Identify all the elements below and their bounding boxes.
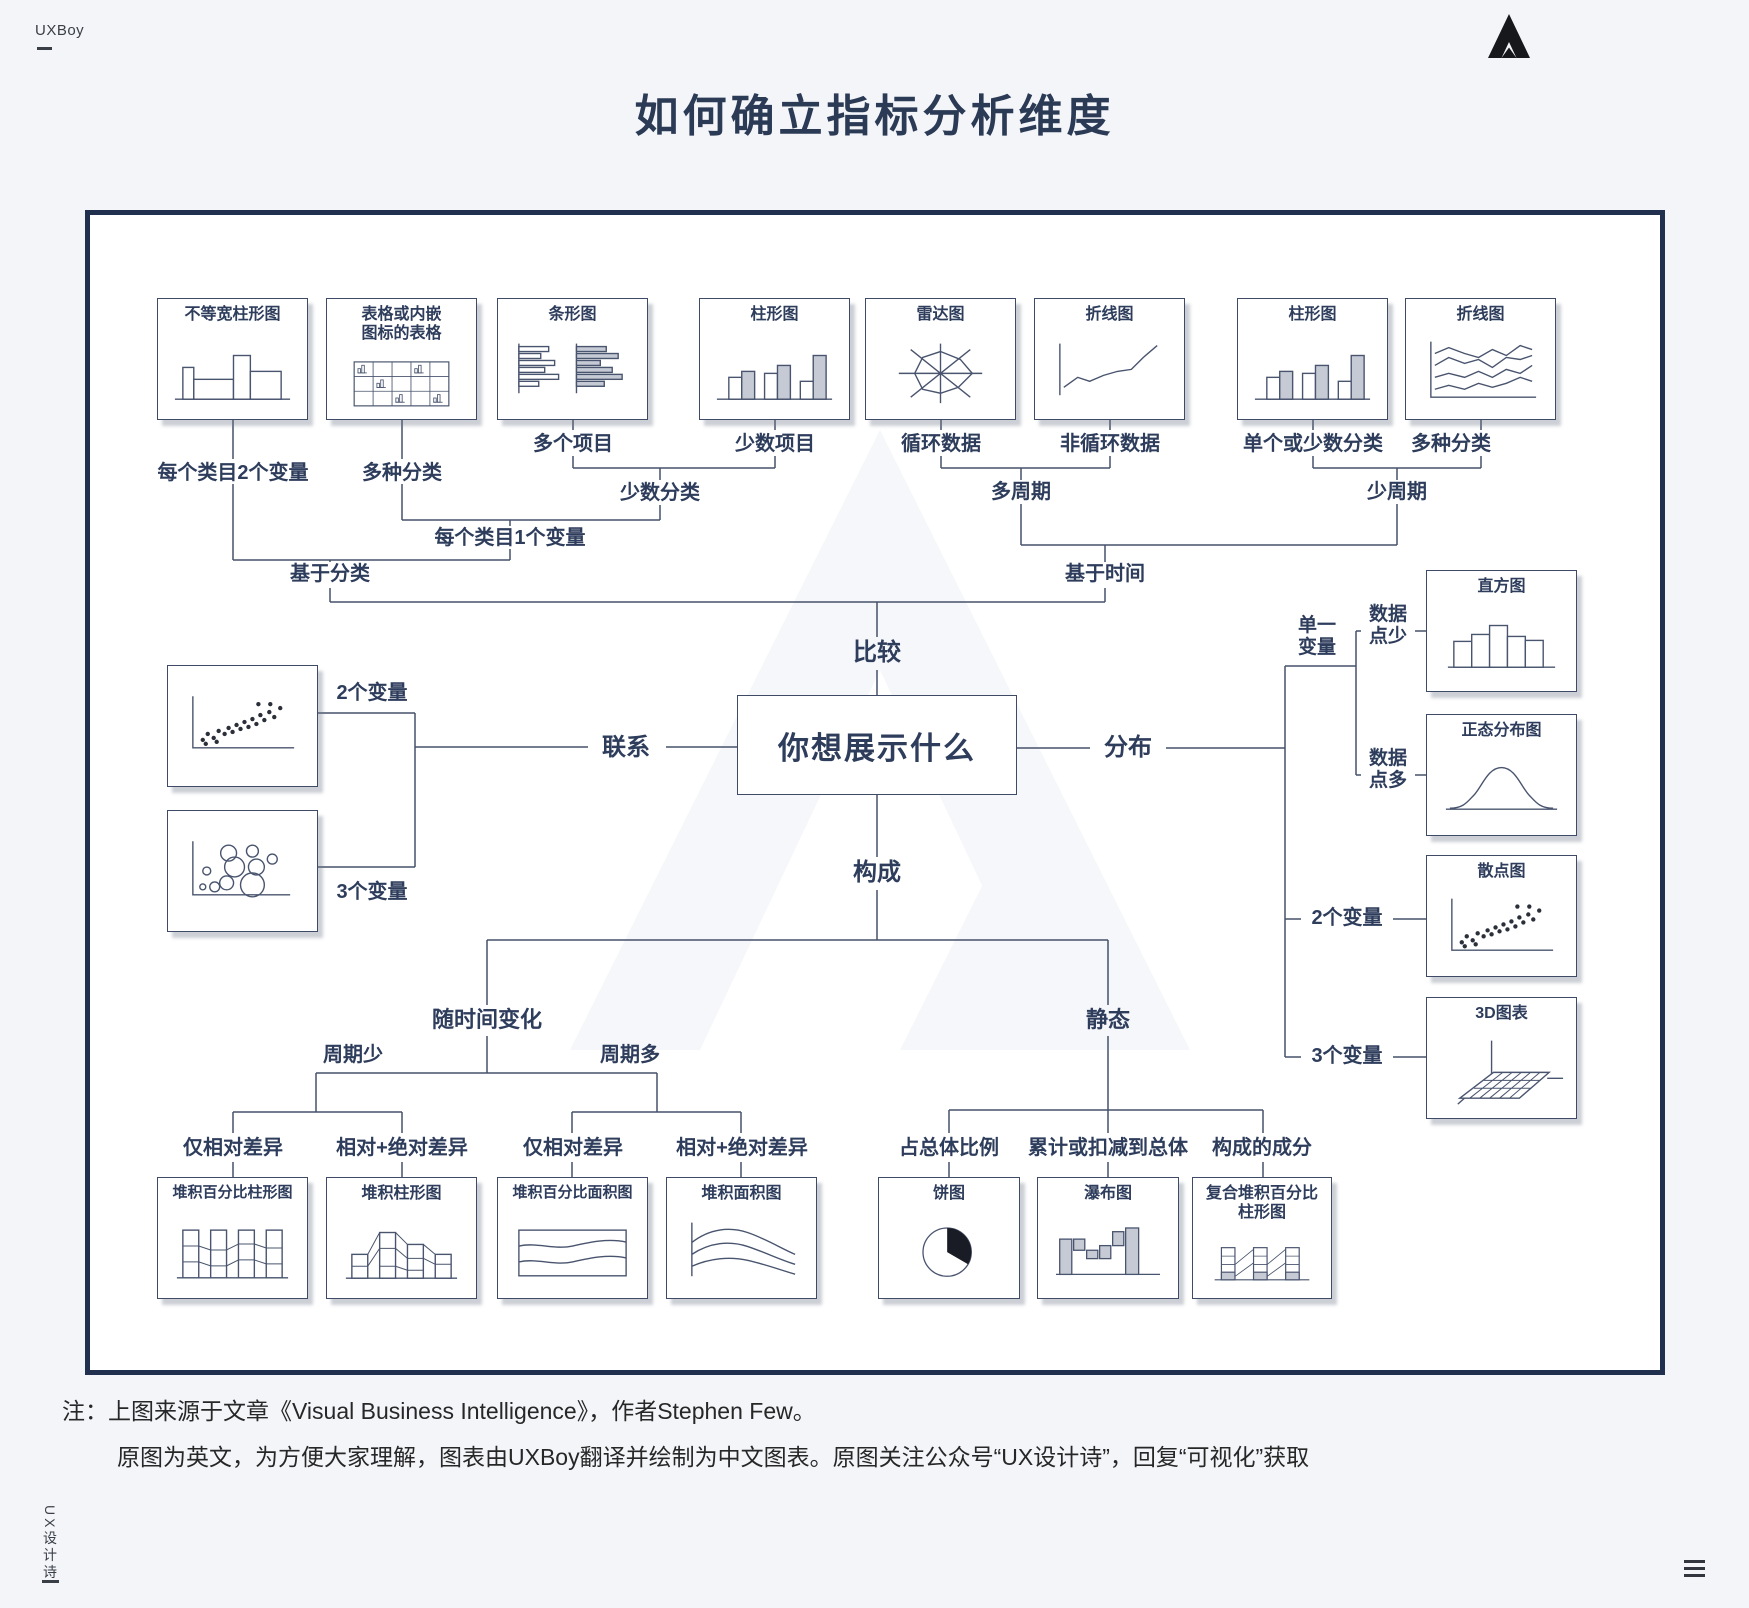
chart-card-title: 堆积百分比面积图 — [498, 1178, 647, 1202]
chart-card-title: 散点图 — [1427, 856, 1576, 881]
flow-label-m3: 少周期 — [1352, 481, 1442, 504]
chart-card-surface-3d: 3D图表 — [1426, 997, 1577, 1119]
scatter-thumbnail-icon — [1427, 881, 1576, 976]
scatter-thumbnail-icon — [168, 666, 317, 786]
chart-card-column-pair: 柱形图 — [699, 298, 850, 420]
flow-label-m6: 基于时间 — [1050, 563, 1160, 586]
flow-label-a7: 单个或少数分类 — [1223, 433, 1403, 456]
chart-card-compound-stacked: 复合堆积百分比 柱形图 — [1192, 1177, 1332, 1299]
flow-label-m4: 每个类目1个变量 — [415, 527, 605, 550]
menu-icon[interactable] — [1684, 1560, 1705, 1581]
chart-card-scatter: 散点图 — [1426, 855, 1577, 977]
chart-card-title: 饼图 — [879, 1178, 1019, 1203]
chart-card-stacked-area: 堆积面积图 — [666, 1177, 817, 1299]
chart-card-title: 正态分布图 — [1427, 715, 1576, 740]
page-title: 如何确立指标分析维度 — [0, 80, 1749, 144]
flow-label-a2: 多种分类 — [342, 462, 462, 485]
chart-card-waterfall: 瀑布图 — [1037, 1177, 1179, 1299]
chart-card-line-single: 折线图 — [1034, 298, 1185, 420]
chart-card-stacked100-column: 堆积百分比柱形图 — [157, 1177, 308, 1299]
flow-label-a4: 少数项目 — [715, 433, 835, 456]
flow-label-m5: 基于分类 — [275, 563, 385, 586]
chart-card-histogram: 直方图 — [1426, 570, 1577, 692]
stacked100-column-thumbnail-icon — [158, 1202, 307, 1298]
chart-card-title: 表格或内嵌 图标的表格 — [327, 299, 476, 343]
pie-thumbnail-icon — [879, 1203, 1019, 1298]
column-pair-thumbnail-icon — [1238, 324, 1387, 419]
flow-label-rv3: 3个变量 — [1301, 1045, 1393, 1068]
flow-label-q6: 累计或扣减到总体 — [1018, 1137, 1198, 1160]
triangle-logo-icon — [1487, 13, 1531, 60]
chart-card-pie: 饼图 — [878, 1177, 1020, 1299]
line-single-thumbnail-icon — [1035, 324, 1184, 419]
flow-label-d2: 联系 — [590, 734, 662, 762]
chart-card-title: 堆积面积图 — [667, 1178, 816, 1203]
flow-label-q3: 仅相对差异 — [509, 1137, 637, 1160]
column-pair-thumbnail-icon — [700, 324, 849, 419]
stacked100-area-thumbnail-icon — [498, 1202, 647, 1298]
vertical-brand-text: UX设计诗 — [40, 1505, 60, 1581]
chart-card-stacked100-area: 堆积百分比面积图 — [497, 1177, 648, 1299]
chart-card-normal-curve: 正态分布图 — [1426, 714, 1577, 836]
compound-stacked-thumbnail-icon — [1193, 1222, 1331, 1298]
flow-label-q5: 占总体比例 — [884, 1137, 1014, 1160]
chart-card-radar: 雷达图 — [865, 298, 1016, 420]
flow-label-a8: 多种分类 — [1391, 433, 1511, 456]
normal-curve-thumbnail-icon — [1427, 740, 1576, 835]
diagram-frame: 你想展示什么 不等宽柱形图表格或内嵌 图标的表格条形图柱形图雷达图折线图柱形图折… — [85, 210, 1665, 1375]
line-multi-thumbnail-icon — [1406, 324, 1555, 419]
flow-label-d3: 分布 — [1092, 734, 1164, 762]
histogram-thumbnail-icon — [1427, 596, 1576, 691]
radar-thumbnail-icon — [866, 324, 1015, 419]
table-embedded-thumbnail-icon — [327, 343, 476, 419]
flow-label-lv2: 2个变量 — [322, 682, 422, 705]
brand-dash — [37, 47, 52, 50]
stacked-area-thumbnail-icon — [667, 1203, 816, 1298]
footer-note: 注：上图来源于文章《Visual Business Intelligence》，… — [62, 1388, 1309, 1480]
chart-card-bar: 条形图 — [497, 298, 648, 420]
flow-label-rv1: 单一 变量 — [1290, 615, 1344, 659]
flow-label-p2: 周期多 — [585, 1044, 675, 1067]
flow-label-b1: 随时间变化 — [417, 1007, 557, 1032]
chart-card-title: 折线图 — [1035, 299, 1184, 324]
chart-card-line-multi: 折线图 — [1405, 298, 1556, 420]
flow-label-a5: 循环数据 — [881, 433, 1001, 456]
varwidth-column-thumbnail-icon — [158, 324, 307, 419]
chart-card-title: 堆积百分比柱形图 — [158, 1178, 307, 1202]
flow-label-m1: 少数分类 — [605, 482, 715, 505]
chart-card-title: 不等宽柱形图 — [158, 299, 307, 324]
flow-label-a1: 每个类目2个变量 — [138, 462, 328, 485]
flow-label-rv2: 2个变量 — [1301, 907, 1393, 930]
chart-card-scatter-untitled — [167, 665, 318, 787]
chart-card-title: 直方图 — [1427, 571, 1576, 596]
chart-card-stacked-column: 堆积柱形图 — [326, 1177, 477, 1299]
flow-label-d1: 比较 — [837, 639, 917, 667]
bubble-thumbnail-icon — [168, 811, 317, 931]
chart-card-title: 复合堆积百分比 柱形图 — [1193, 1178, 1331, 1222]
chart-card-title: 折线图 — [1406, 299, 1555, 324]
chart-card-title: 雷达图 — [866, 299, 1015, 324]
chart-card-title: 柱形图 — [700, 299, 849, 324]
flow-label-q4: 相对+绝对差异 — [665, 1137, 819, 1160]
flow-label-b2: 静态 — [1073, 1007, 1143, 1032]
chart-card-title: 柱形图 — [1238, 299, 1387, 324]
bar-thumbnail-icon — [498, 324, 647, 419]
vertical-brand-dash — [42, 1580, 59, 1583]
chart-card-title: 堆积柱形图 — [327, 1178, 476, 1203]
flow-label-d4: 构成 — [837, 859, 917, 887]
flow-label-lv3: 3个变量 — [322, 881, 422, 904]
surface-3d-thumbnail-icon — [1427, 1023, 1576, 1118]
chart-card-title: 瀑布图 — [1038, 1178, 1178, 1203]
flow-label-q7: 构成的成分 — [1197, 1137, 1327, 1160]
flow-label-q1: 仅相对差异 — [169, 1137, 297, 1160]
central-question-box: 你想展示什么 — [737, 695, 1017, 795]
flow-label-m2: 多周期 — [976, 481, 1066, 504]
chart-card-varwidth-column: 不等宽柱形图 — [157, 298, 308, 420]
flow-label-rp2: 数据 点多 — [1358, 748, 1418, 792]
chart-card-title: 3D图表 — [1427, 998, 1576, 1023]
chart-card-bubble-untitled — [167, 810, 318, 932]
flow-label-q2: 相对+绝对差异 — [325, 1137, 479, 1160]
flow-label-rp1: 数据 点少 — [1358, 604, 1418, 648]
stacked-column-thumbnail-icon — [327, 1203, 476, 1298]
chart-card-table-embedded: 表格或内嵌 图标的表格 — [326, 298, 477, 420]
chart-card-column-pair: 柱形图 — [1237, 298, 1388, 420]
flow-label-a6: 非循环数据 — [1040, 433, 1180, 456]
chart-card-title: 条形图 — [498, 299, 647, 324]
waterfall-thumbnail-icon — [1038, 1203, 1178, 1298]
footer-note-line2: 原图为英文，为方便大家理解，图表由UXBoy翻译并绘制为中文图表。原图关注公众号… — [62, 1434, 1309, 1480]
flow-label-a3: 多个项目 — [513, 433, 633, 456]
footer-note-line1: 注：上图来源于文章《Visual Business Intelligence》，… — [62, 1388, 1309, 1434]
brand-logo-text: UXBoy — [35, 22, 84, 39]
flow-label-p1: 周期少 — [308, 1044, 398, 1067]
